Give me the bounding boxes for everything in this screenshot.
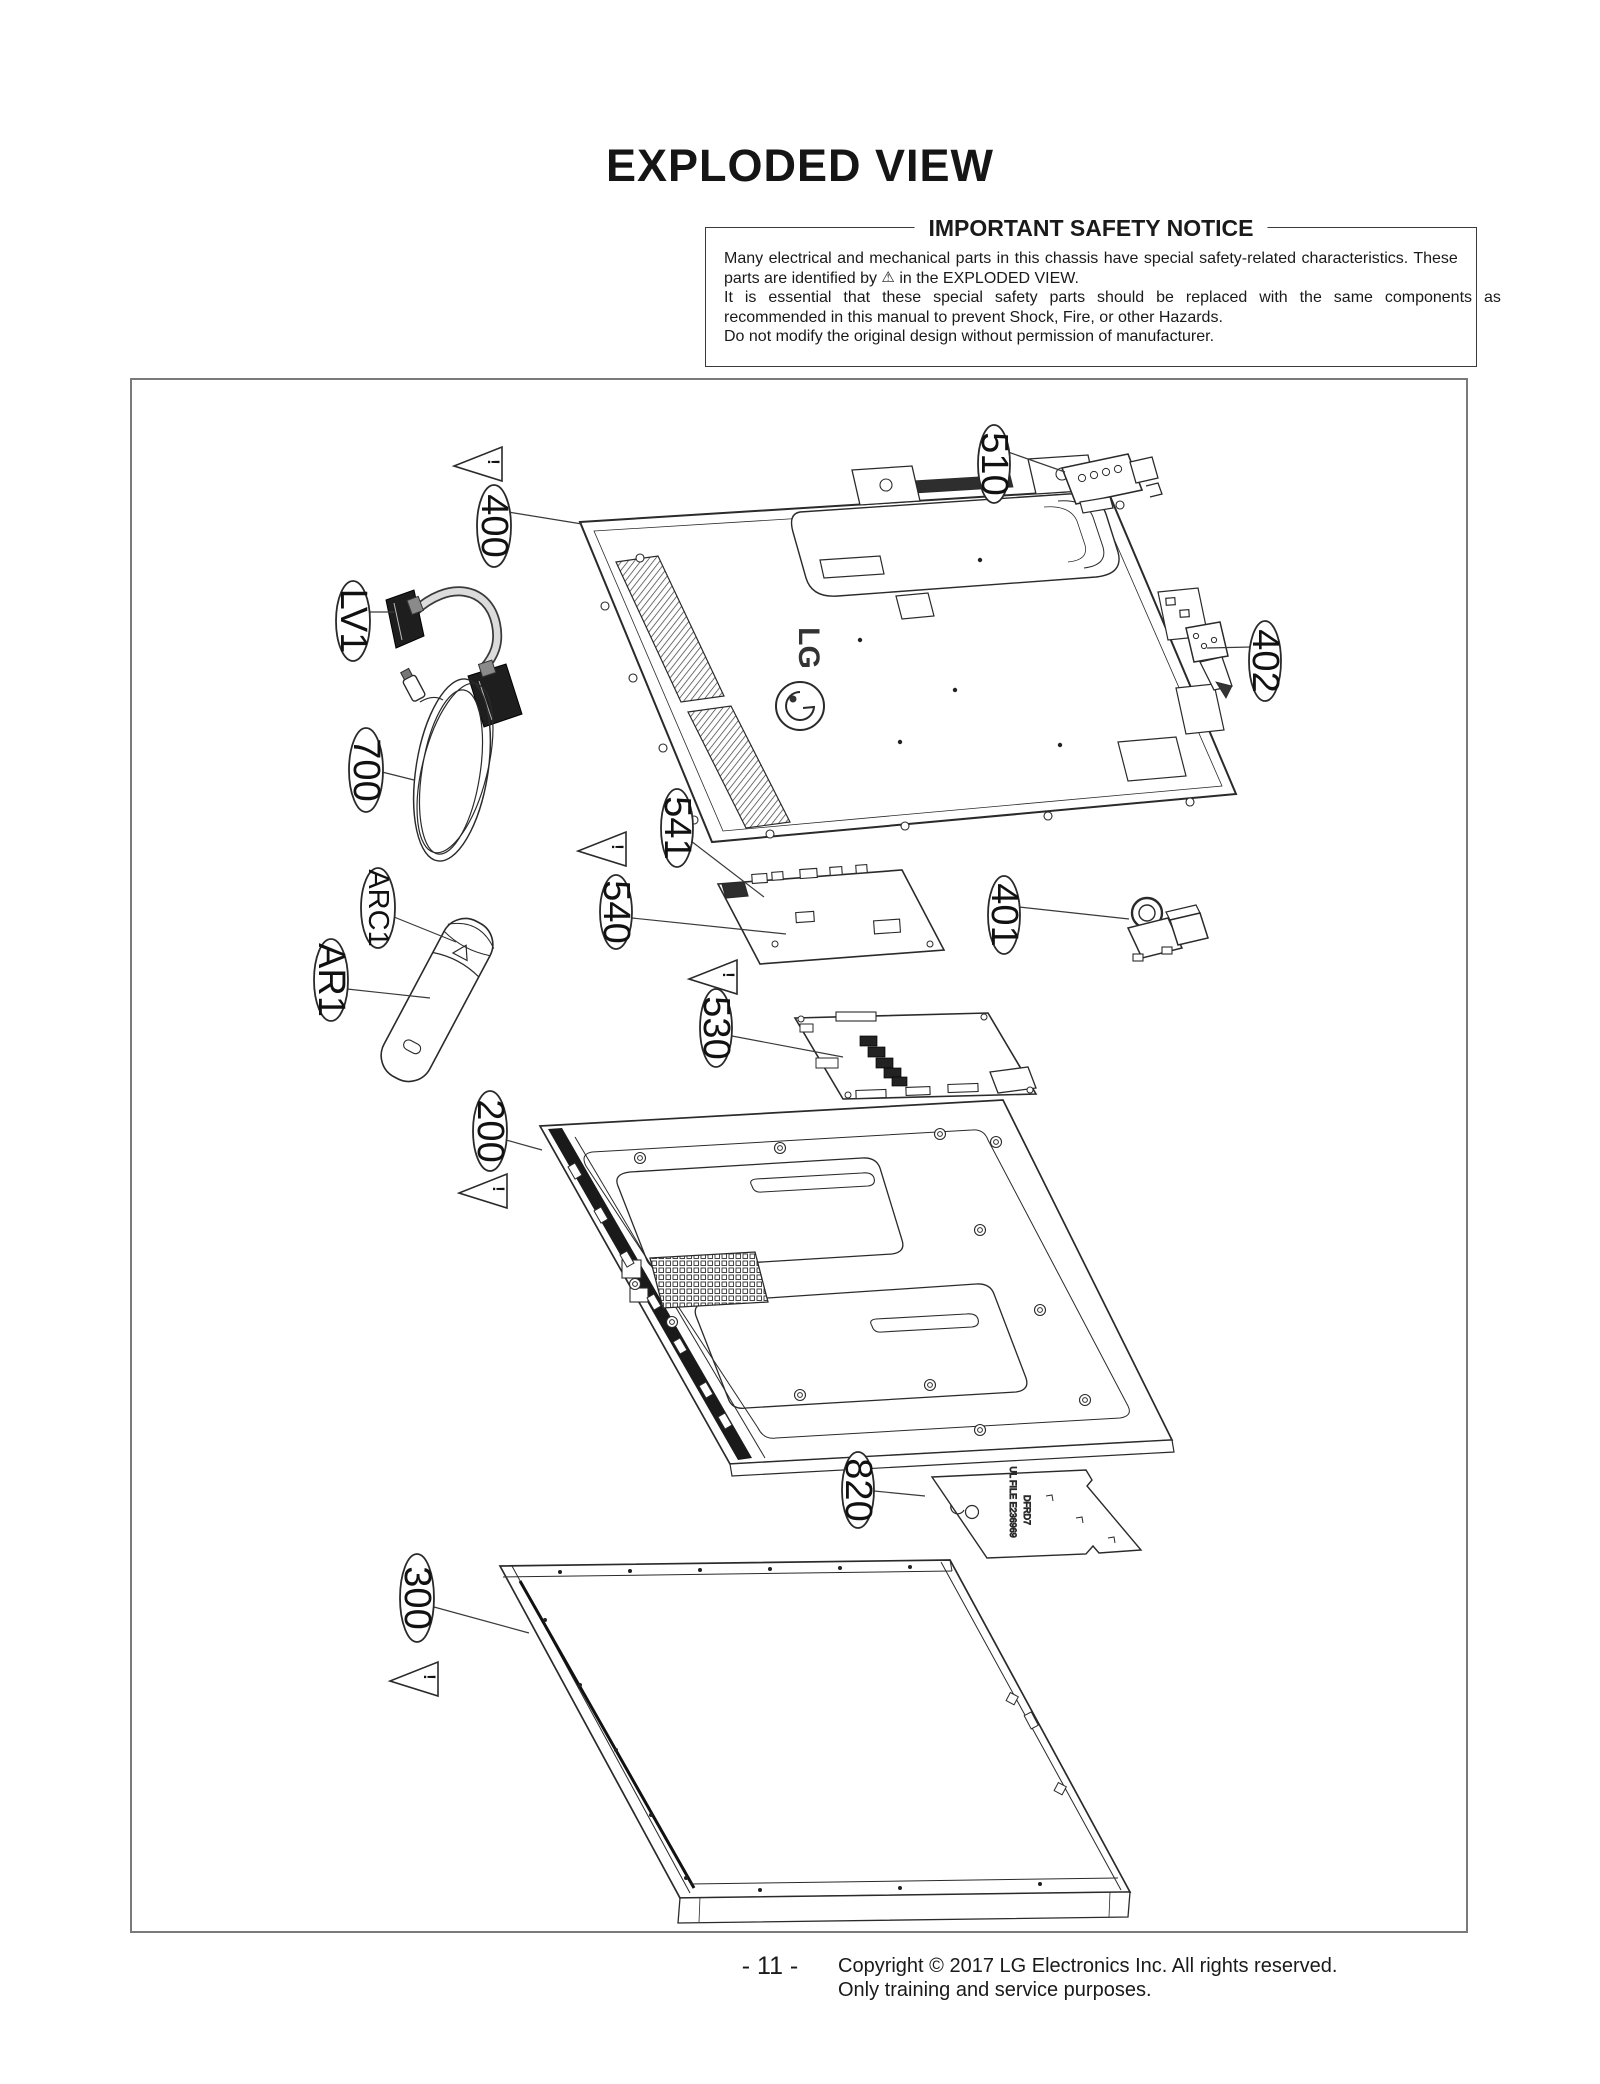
part-label-401: 401	[983, 876, 1025, 954]
svg-text:820: 820	[837, 1458, 879, 1521]
part-label-530: 530	[695, 989, 737, 1067]
svg-text:ARC1: ARC1	[362, 869, 394, 946]
svg-text:401: 401	[983, 883, 1025, 946]
svg-text:!: !	[420, 1674, 439, 1680]
warning-triangle-300: !	[390, 1662, 439, 1696]
part-label-820: 820	[837, 1452, 879, 1528]
svg-text:DFRD7: DFRD7	[1022, 1495, 1032, 1525]
svg-text:200: 200	[469, 1099, 511, 1162]
page-number: - 11 -	[700, 1952, 840, 1981]
part-main-frame-200	[540, 1100, 1174, 1476]
svg-text:540: 540	[595, 880, 637, 943]
copyright-line-2: Only training and service purposes.	[838, 1978, 1337, 2002]
part-holder-401	[1128, 898, 1208, 961]
part-label-arc1: ARC1	[361, 868, 395, 948]
part-label-402: 402	[1244, 621, 1286, 701]
svg-text:AR1: AR1	[310, 943, 352, 1017]
part-power-board-540	[718, 865, 944, 964]
svg-text:400: 400	[473, 494, 515, 557]
svg-text:!: !	[489, 1186, 508, 1192]
part-label-510: 510	[973, 425, 1015, 503]
exploded-view-diagram: LG	[0, 0, 1600, 2084]
part-main-board-530	[795, 1012, 1036, 1099]
part-label-540: 540	[595, 875, 637, 949]
part-label-700: 700	[345, 728, 387, 812]
manual-page: EXPLODED VIEW IMPORTANT SAFETY NOTICE Ma…	[0, 0, 1600, 2084]
svg-text:UL FILE E236969: UL FILE E236969	[1008, 1466, 1018, 1537]
svg-text:LG: LG	[792, 627, 825, 669]
part-label-541: 541	[656, 789, 698, 867]
svg-text:!: !	[608, 844, 627, 850]
part-insulation-sheet-820: UL FILE E236969 DFRD7	[932, 1466, 1141, 1558]
part-label-200: 200	[469, 1091, 511, 1171]
warning-triangle-400: !	[454, 447, 503, 481]
part-panel-300	[500, 1560, 1130, 1923]
svg-text:!: !	[484, 459, 503, 465]
svg-text:LV1: LV1	[332, 589, 374, 654]
copyright-text: Copyright © 2017 LG Electronics Inc. All…	[838, 1954, 1337, 2002]
warning-triangle-540: !	[578, 832, 627, 866]
part-lvds-cable-lv1	[386, 590, 522, 727]
part-label-300: 300	[396, 1554, 438, 1642]
part-label-ar1: AR1	[310, 939, 352, 1021]
keypad-pcb	[650, 1252, 768, 1308]
part-label-400: 400	[473, 485, 515, 567]
svg-text:510: 510	[973, 432, 1015, 495]
svg-text:!: !	[719, 972, 738, 978]
warning-triangle-200: !	[459, 1174, 508, 1208]
svg-text:300: 300	[396, 1566, 438, 1629]
svg-text:700: 700	[345, 738, 387, 801]
copyright-line-1: Copyright © 2017 LG Electronics Inc. All…	[838, 1954, 1337, 1978]
part-back-cover-400: LG	[580, 455, 1236, 842]
svg-text:402: 402	[1244, 629, 1286, 692]
part-label-lv1: LV1	[332, 581, 374, 661]
svg-text:541: 541	[656, 796, 698, 859]
svg-text:530: 530	[695, 996, 737, 1059]
